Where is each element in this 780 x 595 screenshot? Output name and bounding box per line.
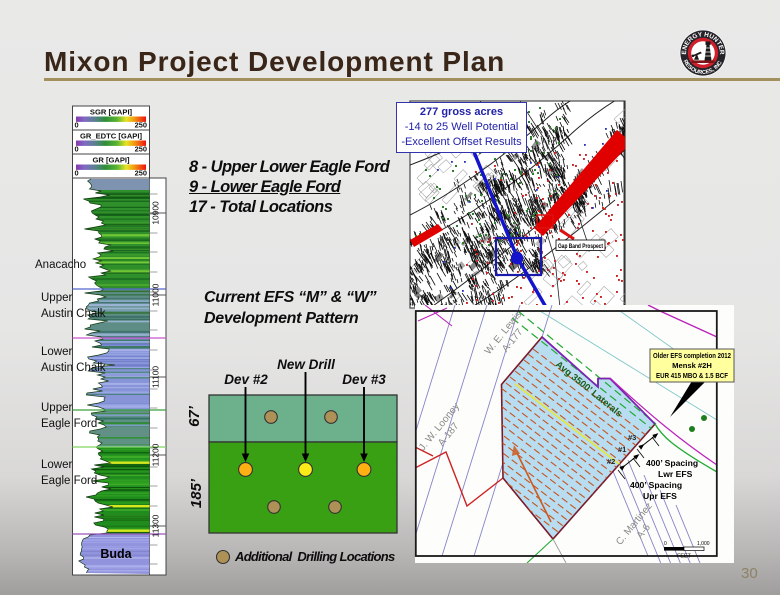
svg-text:11300: 11300 — [151, 514, 161, 537]
svg-text:0: 0 — [75, 169, 79, 178]
svg-text:Upr EFS: Upr EFS — [643, 491, 677, 501]
svg-text:SGR [GAPI]: SGR [GAPI] — [90, 108, 133, 117]
svg-text:0: 0 — [75, 145, 79, 154]
svg-text:400’ Spacing: 400’ Spacing — [630, 480, 682, 490]
svg-text:Buda: Buda — [100, 547, 132, 561]
svg-text:Mensk #2H: Mensk #2H — [672, 361, 712, 370]
svg-text:GR [GAPI]: GR [GAPI] — [92, 156, 130, 165]
svg-text:0: 0 — [75, 121, 79, 130]
svg-text:250: 250 — [135, 145, 147, 154]
svg-text:Older EFS completion 2012: Older EFS completion 2012 — [653, 351, 731, 360]
svg-text:11000: 11000 — [151, 283, 161, 306]
svg-text:1,000: 1,000 — [697, 541, 710, 547]
svg-text:Lwr EFS: Lwr EFS — [658, 469, 693, 479]
svg-text:#3: #3 — [628, 433, 636, 442]
svg-text:FEET: FEET — [677, 554, 691, 560]
svg-text:11100: 11100 — [151, 366, 161, 388]
svg-text:400’ Spacing: 400’ Spacing — [646, 458, 698, 468]
svg-text:#1: #1 — [618, 445, 626, 454]
svg-text:GR_EDTC [GAPI]: GR_EDTC [GAPI] — [80, 132, 142, 141]
svg-text:10900: 10900 — [151, 201, 161, 225]
svg-text:250: 250 — [135, 169, 147, 178]
svg-text:250: 250 — [135, 121, 147, 130]
svg-text:0: 0 — [664, 541, 667, 547]
svg-text:Gap Band Prospect: Gap Band Prospect — [558, 243, 604, 250]
svg-text:11200: 11200 — [151, 443, 161, 466]
svg-text:EUR 415 MBO & 1.5 BCF: EUR 415 MBO & 1.5 BCF — [656, 371, 728, 380]
svg-text:#2: #2 — [607, 457, 615, 466]
